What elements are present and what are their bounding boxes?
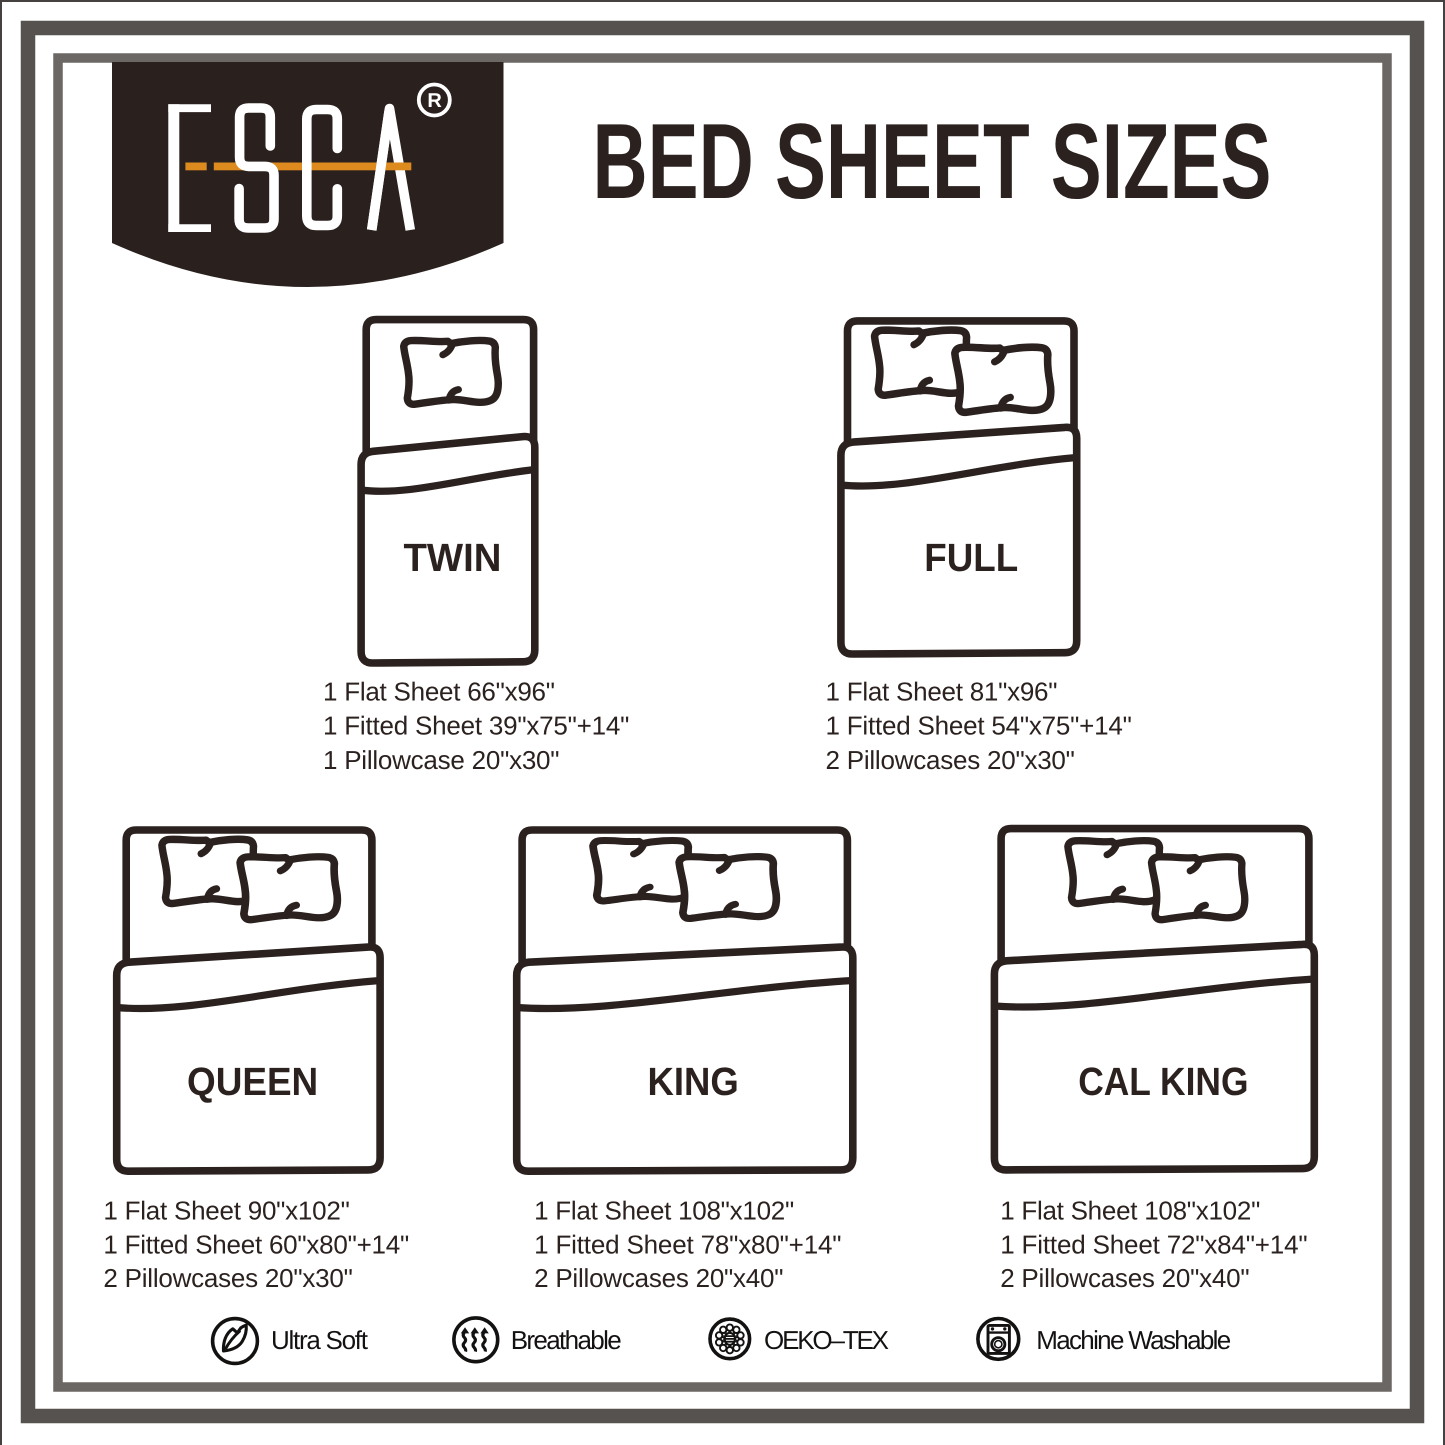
svg-text:1 Flat Sheet 108"x102": 1 Flat Sheet 108"x102" bbox=[534, 1196, 794, 1226]
svg-text:CAL KING: CAL KING bbox=[1078, 1060, 1248, 1104]
svg-text:2 Pillowcases 20"x30": 2 Pillowcases 20"x30" bbox=[826, 745, 1075, 775]
svg-text:KING: KING bbox=[648, 1060, 739, 1104]
svg-text:TWIN: TWIN bbox=[404, 536, 502, 580]
svg-text:Ultra Soft: Ultra Soft bbox=[271, 1325, 369, 1355]
svg-text:1 Fitted Sheet 72"x84"+14": 1 Fitted Sheet 72"x84"+14" bbox=[1000, 1229, 1307, 1259]
svg-text:1 Pillowcase 20"x30": 1 Pillowcase 20"x30" bbox=[323, 745, 560, 775]
svg-text:1 Flat Sheet 81"x96": 1 Flat Sheet 81"x96" bbox=[826, 676, 1058, 706]
svg-text:1 Fitted Sheet 78"x80"+14": 1 Fitted Sheet 78"x80"+14" bbox=[534, 1229, 841, 1259]
svg-text:2 Pillowcases 20"x30": 2 Pillowcases 20"x30" bbox=[103, 1263, 352, 1293]
svg-text:R: R bbox=[427, 90, 442, 112]
svg-text:1 Flat Sheet 66"x96": 1 Flat Sheet 66"x96" bbox=[323, 676, 555, 706]
svg-text:2 Pillowcases 20"x40": 2 Pillowcases 20"x40" bbox=[1000, 1263, 1249, 1293]
svg-text:1 Flat Sheet 108"x102": 1 Flat Sheet 108"x102" bbox=[1000, 1196, 1260, 1226]
svg-text:2 Pillowcases 20"x40": 2 Pillowcases 20"x40" bbox=[534, 1263, 783, 1293]
svg-text:BED SHEET SIZES: BED SHEET SIZES bbox=[593, 101, 1272, 221]
svg-text:QUEEN: QUEEN bbox=[187, 1060, 318, 1104]
svg-text:OEKO–TEX: OEKO–TEX bbox=[764, 1325, 889, 1355]
svg-text:FULL: FULL bbox=[924, 536, 1018, 580]
svg-text:1 Fitted Sheet 39"x75"+14": 1 Fitted Sheet 39"x75"+14" bbox=[323, 711, 629, 741]
svg-text:1 Fitted Sheet 60"x80"+14": 1 Fitted Sheet 60"x80"+14" bbox=[103, 1229, 409, 1259]
svg-text:Machine Washable: Machine Washable bbox=[1036, 1325, 1231, 1355]
svg-text:1 Fitted Sheet 54"x75"+14": 1 Fitted Sheet 54"x75"+14" bbox=[826, 711, 1132, 741]
svg-text:Breathable: Breathable bbox=[511, 1325, 622, 1355]
svg-text:1 Flat Sheet 90"x102": 1 Flat Sheet 90"x102" bbox=[103, 1196, 349, 1226]
